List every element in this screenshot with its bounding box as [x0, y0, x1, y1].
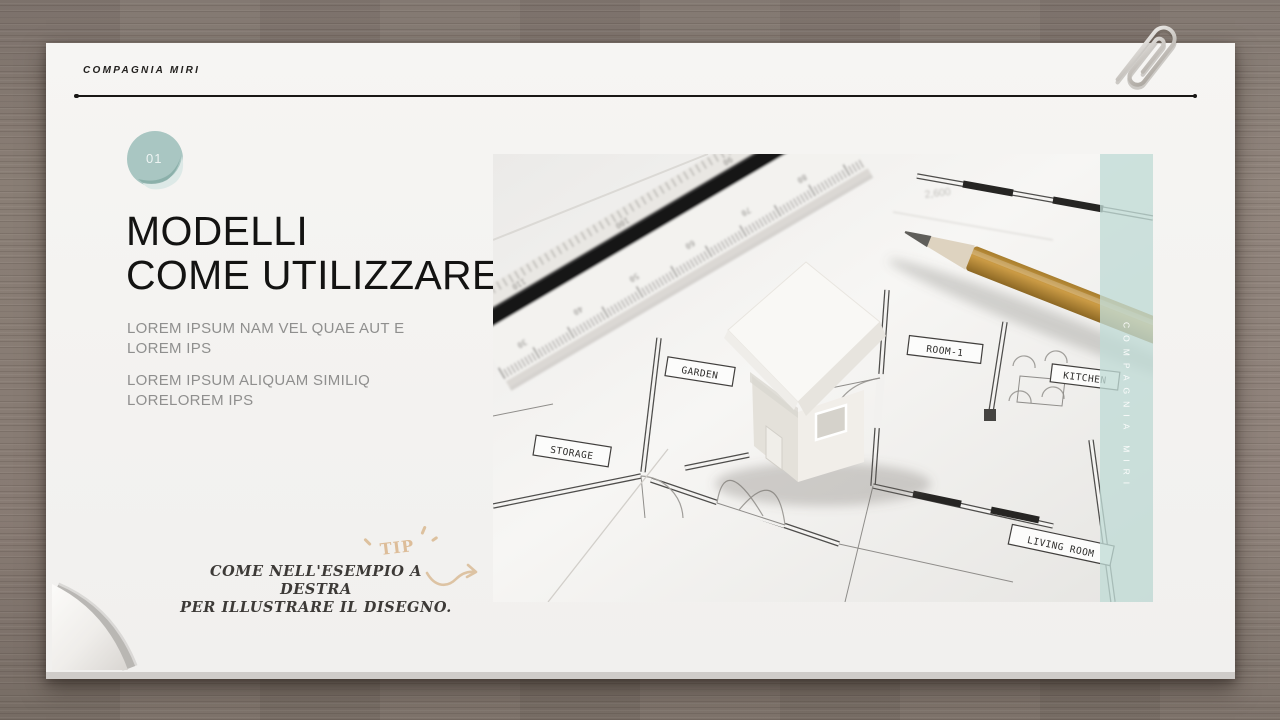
doodle-arrow-icon: [425, 561, 481, 601]
badge-number: 01: [146, 151, 162, 166]
desk-background: COMPAGNIA MIRI 01 MODELLI COME UTILIZZAR…: [0, 0, 1280, 720]
tip-label: TIP: [379, 536, 415, 559]
tip-caption: COME NELL'ESEMPIO A DESTRA PER ILLUSTRAR…: [176, 563, 456, 617]
body-p2-line1: LOREM IPSUM ALIQUAM SIMILIQ: [127, 371, 404, 391]
brand-text: COMPAGNIA MIRI: [83, 65, 200, 76]
title-line-2: COME UTILIZZARE: [126, 253, 500, 297]
sparkle-icon: [363, 538, 371, 546]
blueprint-illustration: 2,600 2,600 GARDEN ROOM-1 KITCHE: [493, 154, 1153, 602]
body-copy: LOREM IPSUM NAM VEL QUAE AUT E LOREM IPS…: [127, 319, 404, 423]
side-tab-stripe: COMPAGNIA MIRI: [1100, 154, 1153, 602]
side-tab-text: COMPAGNIA MIRI: [1122, 322, 1132, 491]
tip-caption-line2: PER ILLUSTRARE IL DISEGNO.: [176, 599, 456, 617]
body-p1-line1: LOREM IPSUM NAM VEL QUAE AUT E: [127, 319, 404, 339]
page-curl: [46, 568, 166, 672]
body-p2-line2: LORELOREM IPS: [127, 391, 404, 411]
slide-paper: COMPAGNIA MIRI 01 MODELLI COME UTILIZZAR…: [46, 43, 1235, 679]
sparkle-icon: [431, 536, 438, 542]
body-p1-line2: LOREM IPS: [127, 339, 404, 359]
blueprint-photo: 2,600 2,600 GARDEN ROOM-1 KITCHE: [493, 154, 1153, 602]
slide-title: MODELLI COME UTILIZZARE: [126, 209, 500, 297]
body-paragraph-2: LOREM IPSUM ALIQUAM SIMILIQ LORELOREM IP…: [127, 371, 404, 411]
sparkle-icon: [420, 526, 426, 535]
header-divider-line: [76, 95, 1195, 97]
tip-caption-line1: COME NELL'ESEMPIO A DESTRA: [176, 563, 456, 599]
title-line-1: MODELLI: [126, 209, 500, 253]
number-badge-sticker: 01: [126, 130, 186, 192]
tip-label-text: TIP: [379, 536, 415, 559]
body-paragraph-1: LOREM IPSUM NAM VEL QUAE AUT E LOREM IPS: [127, 319, 404, 359]
page-curl-flap: [52, 584, 128, 670]
